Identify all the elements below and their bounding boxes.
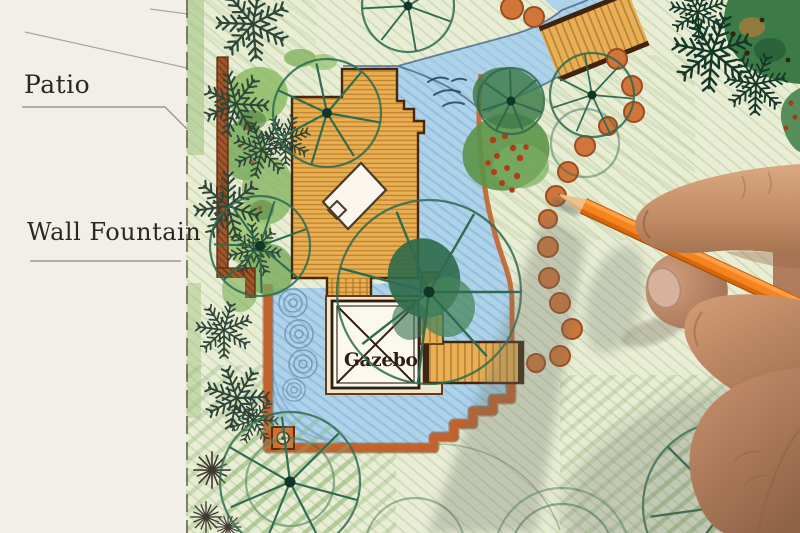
garden-plan-photo: Gazebo [0,0,800,533]
wall-fountain-label: Wall Fountain [27,218,201,246]
patio-label: Patio [24,70,90,99]
garden-plan-drawing: Gazebo [0,0,800,533]
gazebo-label: Gazebo [344,350,418,371]
